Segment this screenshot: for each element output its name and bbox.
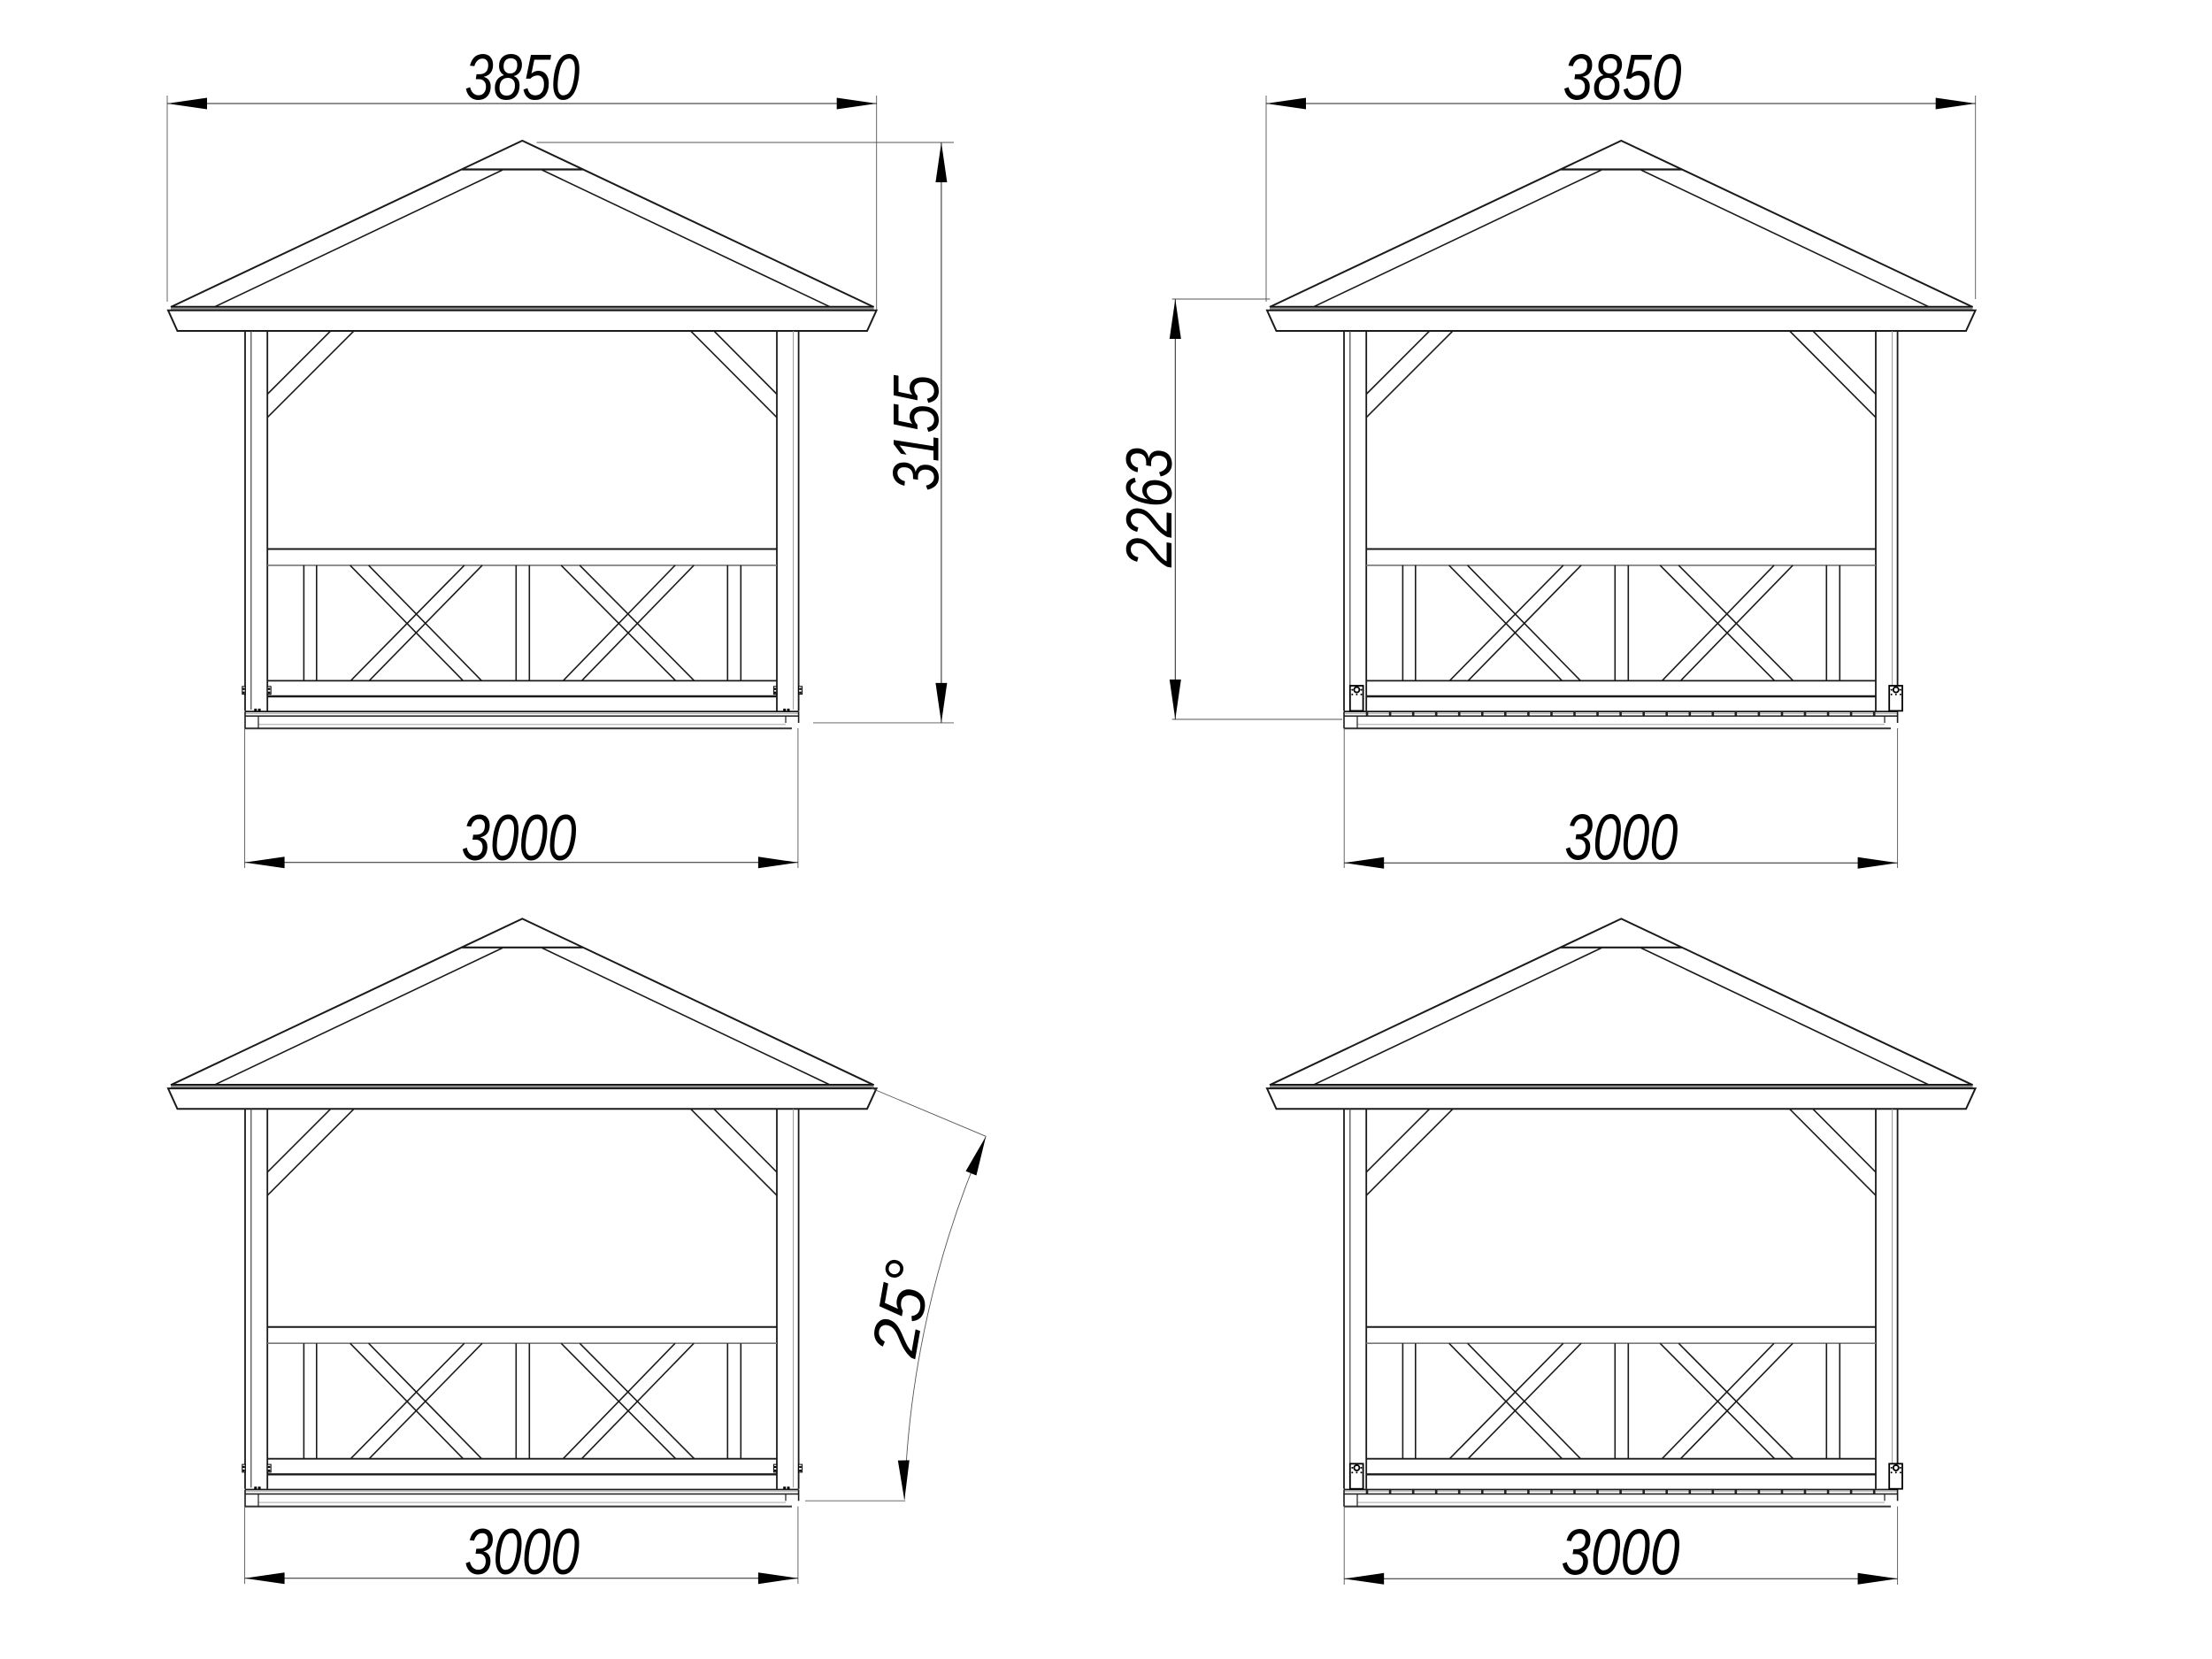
svg-text:3850: 3850 [465,42,580,114]
svg-text:3000: 3000 [1562,1517,1680,1589]
svg-text:3000: 3000 [462,803,577,874]
svg-text:2263: 2263 [1114,448,1186,568]
svg-text:3000: 3000 [1564,803,1678,874]
svg-text:3850: 3850 [1563,42,1682,114]
svg-text:3155: 3155 [881,375,953,491]
svg-text:3000: 3000 [465,1517,580,1588]
